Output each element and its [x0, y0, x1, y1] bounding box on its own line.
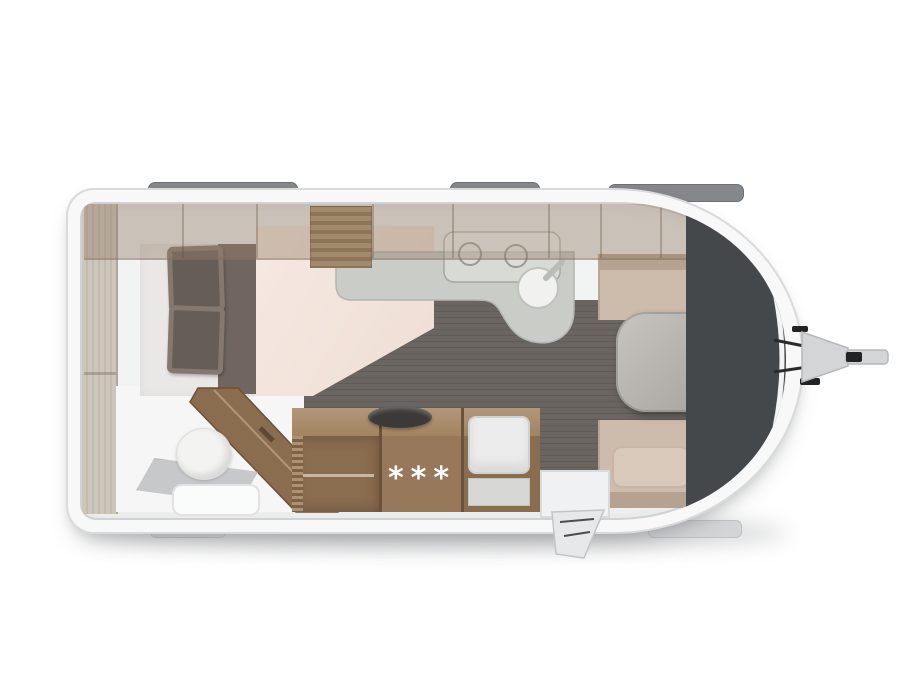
- bench-cushion: [612, 446, 690, 488]
- caravan-interior: ***: [80, 202, 786, 520]
- hitch-bar: [846, 350, 888, 364]
- pillow-icon: [167, 305, 225, 375]
- hitch-coupling: [802, 332, 848, 382]
- toilet-icon: [176, 428, 232, 480]
- tambour-strip: [292, 436, 303, 512]
- bench-seat-bottom: [598, 420, 706, 508]
- front-panel-seam: [766, 256, 782, 464]
- cabinet-divider: [452, 204, 454, 258]
- entry-door-frame: [540, 470, 610, 518]
- bench-backrest: [600, 492, 706, 508]
- cabinet-divider: [660, 204, 662, 258]
- cabinet-divider: [372, 204, 374, 258]
- sink-faucet-icon: [546, 262, 562, 278]
- bench-seat-top: [598, 254, 706, 320]
- shelf-line: [300, 474, 374, 477]
- cabinet-divider: [256, 204, 258, 258]
- floorplan-layer: ***: [80, 202, 786, 520]
- bathroom-basin: [172, 484, 260, 516]
- hitch-bar-segment: [846, 352, 862, 362]
- cabinet-divider: [182, 204, 184, 258]
- caravan-body: ***: [68, 190, 802, 532]
- overhead-cabinets: [84, 204, 706, 260]
- stove-bowl-icon: [368, 406, 432, 428]
- caravan-floorplan-canvas: ***: [0, 0, 906, 680]
- wardrobe-shelf-line: [84, 372, 116, 375]
- dinette-table: [616, 312, 708, 412]
- cabinet-divider: [600, 204, 602, 258]
- appliance-shelf: [468, 478, 530, 506]
- cabinet-divider: [548, 204, 550, 258]
- oven-appliance: [468, 416, 530, 474]
- fridge-stars-icon: ***: [380, 468, 464, 498]
- hitch-jockey-wheel: [800, 378, 820, 385]
- wardrobe-louver-icon: [310, 206, 372, 268]
